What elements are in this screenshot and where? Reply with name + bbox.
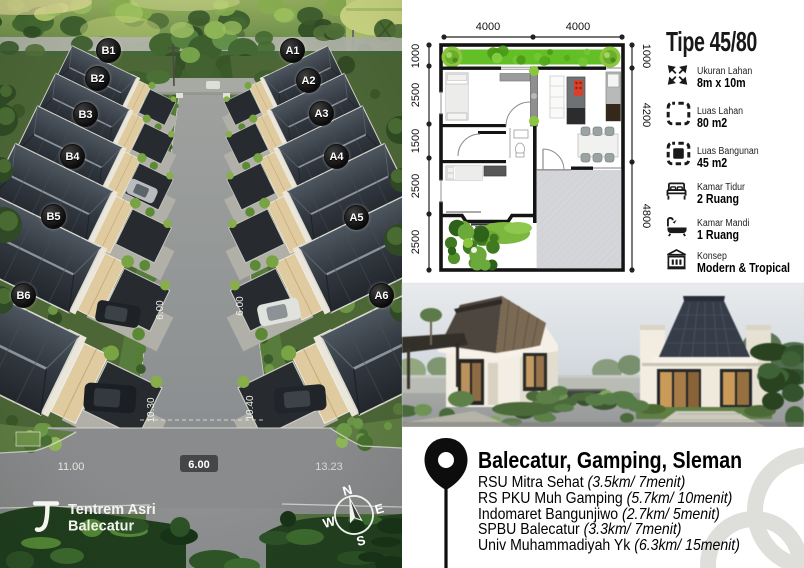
svg-text:1000: 1000: [410, 44, 422, 68]
svg-text:1500: 1500: [410, 129, 422, 153]
svg-text:2500: 2500: [410, 83, 422, 107]
svg-text:4000: 4000: [566, 21, 590, 33]
svg-text:6.00: 6.00: [155, 300, 166, 320]
svg-text:10.40: 10.40: [245, 395, 256, 420]
svg-text:4200: 4200: [640, 103, 652, 127]
svg-text:Tentrem Asri: Tentrem Asri: [68, 502, 156, 518]
svg-text:11.00: 11.00: [58, 461, 85, 473]
svg-text:2500: 2500: [410, 174, 422, 198]
svg-text:Balecatur: Balecatur: [68, 519, 134, 535]
svg-text:4000: 4000: [476, 21, 500, 33]
svg-text:6.00: 6.00: [188, 459, 209, 471]
svg-text:10.30: 10.30: [146, 397, 157, 422]
svg-text:13.23: 13.23: [315, 461, 343, 473]
svg-text:6.00: 6.00: [235, 296, 246, 316]
svg-text:1000: 1000: [640, 44, 652, 68]
svg-text:2500: 2500: [410, 230, 422, 254]
svg-text:4800: 4800: [640, 204, 652, 228]
